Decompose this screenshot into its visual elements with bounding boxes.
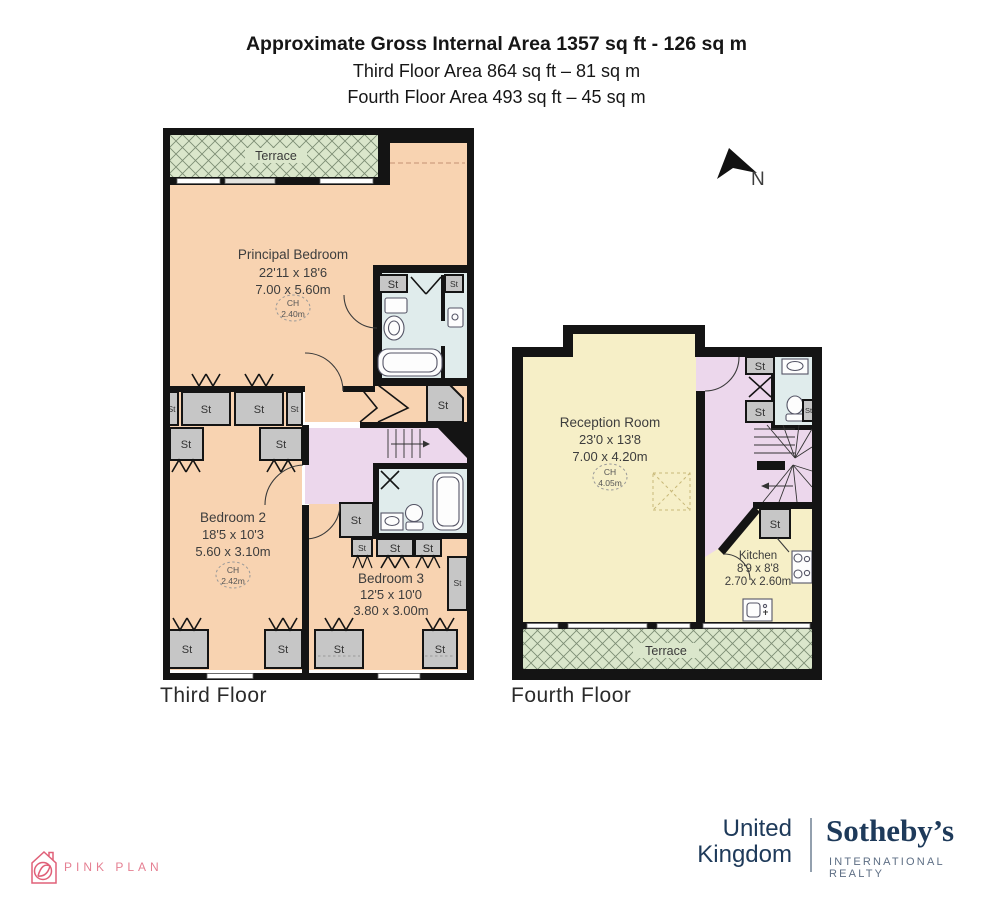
ch-label: CH [227,565,239,575]
bedroom2-metric: 5.60 x 3.10m [195,544,270,559]
st-label: St [201,404,211,416]
brand-region: United Kingdom [636,816,792,868]
bedroom3-name: Bedroom 3 [358,571,424,586]
kitchen-imperial: 8'9 x 8'8 [737,563,779,575]
st-label: St [805,406,813,415]
reception-imperial: 23'0 x 13'8 [579,432,641,447]
st-label: St [770,519,780,531]
st-label: St [435,644,445,656]
st-label: St [755,361,765,373]
third-floor-area-subtitle: Third Floor Area 864 sq ft – 81 sq m [0,61,993,82]
reception-metric: 7.00 x 4.20m [572,449,647,464]
brand-divider [810,818,812,872]
kitchen-name: Kitchen [739,550,777,562]
st-label: St [390,543,400,555]
sothebys-wordmark: Sotheby’s [826,813,954,849]
st-label: St [358,543,367,553]
sothebys-tagline: INTERNATIONAL REALTY [829,856,993,880]
page-title: Approximate Gross Internal Area 1357 sq … [0,33,993,56]
reception-ceiling: 4.05m [598,478,622,488]
bedroom2-name: Bedroom 2 [200,510,266,525]
fourth-terrace-label: Terrace [645,644,687,658]
fourth-terrace: Terrace [523,629,812,669]
bedroom2-ceiling: 2.42m [221,576,245,586]
st-label: St [453,578,462,588]
st-label: St [334,644,344,656]
reception-floor [523,357,696,622]
principal-bedroom-imperial: 22'11 x 18'6 [259,265,327,280]
reception-name: Reception Room [560,415,661,430]
st-label: St [181,439,191,451]
third-floor-plan: Terrace St St Principal Bedroom 22'11 x … [163,128,474,680]
st-label: St [254,404,264,416]
kitchen-metric: 2.70 x 2.60m [725,576,791,588]
st-label: St [276,439,286,451]
floorplan-page: { "header": { "title": "Approximate Gros… [0,0,993,900]
bedroom2-imperial: 18'5 x 10'3 [202,527,264,542]
brand-region-line1: United [636,816,792,842]
st-label: St [290,404,299,414]
fourth-floor-plan: St St St St [505,325,835,685]
principal-bedroom-name: Principal Bedroom [238,247,348,262]
toilet-icon [406,505,423,522]
toilet-icon [787,396,803,414]
st-label: St [438,400,448,412]
third-floor-label: Third Floor [160,684,267,708]
bedroom3-imperial: 12'5 x 10'0 [360,587,422,602]
st-label: St [450,279,459,289]
ch-label: CH [287,298,299,308]
fourth-floor-area-subtitle: Fourth Floor Area 493 sq ft – 45 sq m [0,87,993,108]
toilet-cistern [385,298,407,313]
bedroom3-metric: 3.80 x 3.00m [353,603,428,618]
st-label: St [278,644,288,656]
fourth-floor-label: Fourth Floor [511,684,631,708]
st-label: St [423,543,433,555]
st-label: St [351,515,361,527]
brand-region-line2: Kingdom [636,842,792,868]
st-label: St [755,407,765,419]
north-arrow: N [705,143,777,195]
st-label: St [182,644,192,656]
third-terrace-label: Terrace [255,149,297,163]
bedroom3-labels: Bedroom 3 12'5 x 10'0 3.80 x 3.00m [353,571,428,618]
ch-label: CH [604,467,616,477]
pink-plan-logo [30,850,58,886]
principal-bedroom-ceiling: 2.40m [281,309,305,319]
pink-plan-wordmark: PINK PLAN [64,860,163,874]
north-label: N [751,169,765,190]
hall-bathroom [373,463,467,539]
st-label: St [388,279,398,291]
